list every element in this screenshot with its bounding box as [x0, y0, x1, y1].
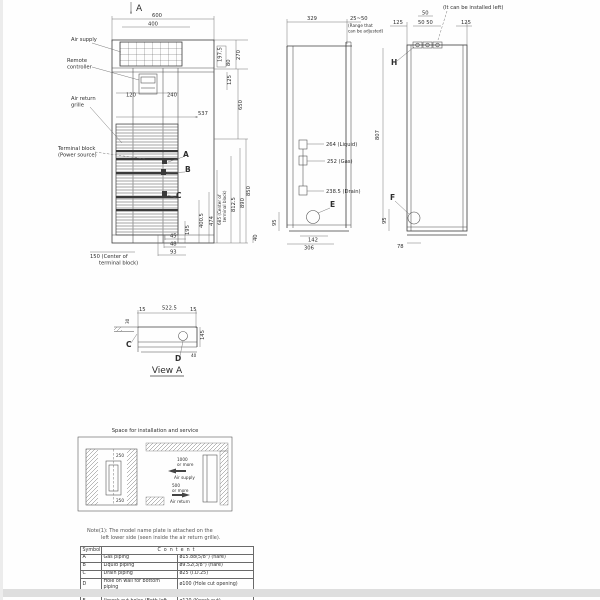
dim-93: 93 — [170, 250, 177, 256]
dim-125: 125 — [227, 75, 233, 85]
view-a-hole — [179, 332, 188, 341]
bottom-piping-hole — [307, 211, 320, 224]
scan-bottom-strip — [0, 589, 600, 597]
terminal-block-label-1: Terminal block — [57, 146, 95, 152]
point-h-label: H — [391, 58, 397, 67]
table-header-row: Symbol Content — [81, 547, 254, 555]
row-value: ø25 (I.D.25) — [178, 570, 254, 578]
clearance-top: 250 — [116, 453, 124, 458]
row-symbol: B — [81, 562, 102, 570]
row-symbol: C — [81, 570, 102, 578]
dim-rear-50-top: 50 — [422, 11, 429, 17]
pipe-point-c — [162, 191, 167, 197]
dim-400-5: 400.5 — [199, 213, 205, 228]
section-a-label: A — [136, 4, 143, 14]
table-row: C Drain piping ø25 (I.D.25) — [81, 570, 254, 578]
view-a: 15 522.5 15 30 C D 145 40 View A — [114, 306, 206, 377]
dim-rear-50-50: 50 50 — [418, 20, 433, 26]
dim-front-width-600: 600 — [152, 13, 162, 19]
dim-va-40: 40 — [191, 353, 197, 358]
table-row: A Gas piping ø15.88(5/8") (flare) — [81, 554, 254, 562]
point-b-label: B — [185, 165, 191, 174]
air-return-arrow-icon — [172, 493, 190, 498]
dim-45: 45 — [170, 234, 177, 240]
view-a-title: View A — [152, 366, 183, 376]
install-left-note: (It can be installed left) — [443, 5, 503, 11]
dim-40: 40 — [253, 234, 259, 241]
floor-hatch — [146, 497, 164, 505]
dim-rear-125-left: 125 — [393, 20, 403, 26]
air-supply-arrow-label: Air supply — [174, 475, 195, 480]
wall-hatch-right — [127, 449, 137, 505]
air-return-label-1: Air return — [71, 96, 96, 102]
content-header: Content — [102, 547, 254, 555]
scan-left-edge — [0, 0, 3, 600]
dim-grille-537: 537 — [198, 111, 208, 117]
pipe-point-b — [161, 169, 166, 175]
dim-890: 890 — [240, 198, 246, 208]
rear-unit-outline — [407, 45, 467, 231]
dim-80: 80 — [226, 59, 232, 66]
dim-side-95: 95 — [272, 219, 278, 226]
dim-850: 850 — [246, 186, 252, 196]
dim-center-terminal-2: terminal block) — [222, 190, 227, 222]
note-line-2: left lower side (seen inside the air ret… — [87, 535, 267, 542]
air-return-arrow-label: Air return — [170, 499, 190, 504]
dim-depth-329: 329 — [307, 16, 317, 22]
dim-807: 807 — [375, 130, 381, 140]
dim-270: 270 — [236, 50, 242, 60]
wall-hatch-rear — [220, 451, 228, 505]
dim-812-5: 812.5 — [231, 197, 237, 212]
row-symbol: A — [81, 554, 102, 562]
dim-va-145: 145 — [200, 330, 206, 340]
air-return-label-2: grille — [71, 103, 84, 109]
front-view: A 600 400 120 240 537 — [57, 2, 259, 267]
clearance-bottom: 250 — [116, 498, 124, 503]
dim-rc-240: 240 — [167, 93, 177, 99]
point-c-label: C — [176, 191, 182, 200]
remote-controller-label-2: controller — [67, 65, 93, 71]
center-terminal-note-1: 150 (Center of — [90, 254, 128, 260]
air-return-grille — [116, 124, 178, 235]
side-piping-hole — [408, 212, 420, 224]
technical-drawing-page: A 600 400 120 240 537 — [0, 0, 600, 600]
terminal-block-label-2: (Power source) — [58, 153, 97, 159]
row-content: Drain piping — [102, 570, 178, 578]
drain-pipe-stub — [299, 186, 307, 195]
unit-side-outline — [203, 455, 217, 502]
side-view: 329 25~50 (Range that can be adjusted) 2… — [272, 16, 384, 252]
dim-474: 474 — [209, 215, 215, 226]
point-c2-label: C — [126, 340, 132, 349]
wall-hatch-left — [86, 449, 98, 505]
return-space-2: or more — [172, 488, 189, 493]
supply-space-2: or more — [177, 462, 194, 467]
row-value: ø15.88(5/8") (flare) — [178, 554, 254, 562]
center-terminal-note-2: terminal block) — [99, 261, 138, 267]
row-content: Gas piping — [102, 554, 178, 562]
pipe-point-a — [162, 158, 167, 164]
dim-gas-252: 252 (Gas) — [327, 159, 353, 165]
dim-rc-120: 120 — [126, 93, 136, 99]
dim-va-522-5: 522.5 — [162, 306, 177, 312]
dim-va-15-right: 15 — [190, 307, 197, 313]
dim-rear-95: 95 — [382, 217, 388, 224]
air-supply-arrow-icon — [168, 469, 186, 474]
dim-va-30: 30 — [125, 318, 130, 324]
dim-front-width-400: 400 — [148, 22, 158, 28]
table-row: B Liquid piping ø9.52(3/8") (flare) — [81, 562, 254, 570]
dim-78: 78 — [397, 244, 404, 250]
liquid-pipe-stub — [299, 140, 307, 149]
air-supply-grille — [120, 42, 182, 66]
dim-range-1: 25~50 — [350, 16, 368, 22]
dim-liquid-264: 264 (Liquid) — [326, 142, 357, 148]
symbol-header: Symbol — [81, 547, 102, 555]
remote-controller-label-1: Remote — [67, 58, 87, 64]
dim-306: 306 — [304, 246, 314, 252]
dim-range-3: can be adjusted) — [348, 29, 384, 34]
ceiling-hatch — [146, 443, 228, 451]
dim-142: 142 — [308, 238, 318, 244]
installation-title: Space for installation and service — [112, 428, 199, 434]
dim-range-2: (Range that — [348, 23, 373, 28]
installation-space: Space for installation and service 250 2… — [78, 428, 232, 511]
point-e-label: E — [330, 200, 335, 209]
note-text: Note(1): The model name plate is attache… — [87, 528, 267, 541]
dim-drain-238-5: 238.5 (Drain) — [326, 189, 361, 195]
dimension-drawing: A 600 400 120 240 537 — [0, 0, 600, 600]
point-f-label: F — [390, 193, 395, 202]
dim-va-15-left: 15 — [139, 307, 146, 313]
row-value: ø9.52(3/8") (flare) — [178, 562, 254, 570]
air-supply-label: Air supply — [71, 37, 97, 43]
dim-195: 195 — [185, 225, 191, 235]
dim-197-5: 197.5 — [218, 47, 224, 62]
dim-48: 48 — [170, 242, 177, 248]
dim-rear-125-right: 125 — [461, 20, 471, 26]
dim-650: 650 — [238, 100, 244, 110]
point-a-label: A — [183, 150, 189, 159]
row-content: Liquid piping — [102, 562, 178, 570]
rear-view: 125 50 50 50 125 (It can be installed le… — [375, 5, 503, 250]
